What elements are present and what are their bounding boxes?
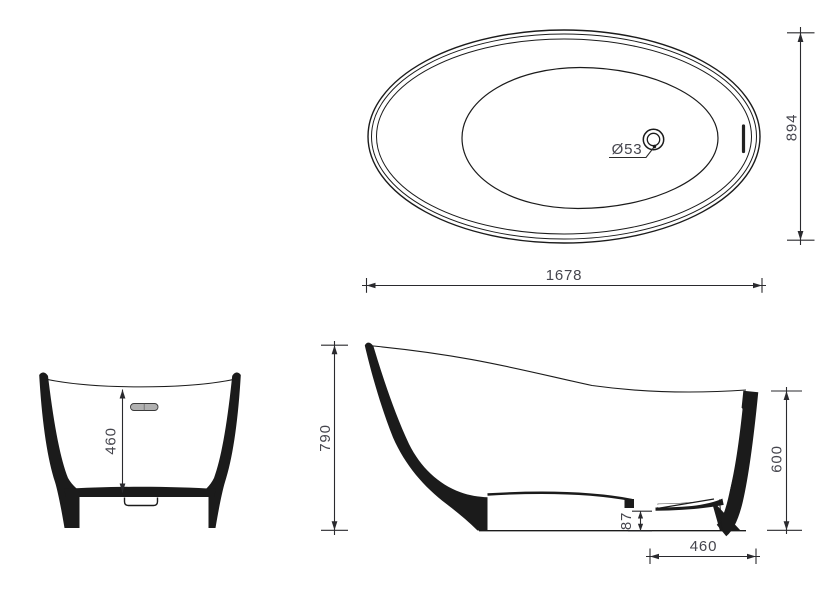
dim-arrow-down xyxy=(332,521,338,530)
dim-front-inner-depth-value: 460 xyxy=(103,427,120,454)
dim-side-drain-outlet-height-value: 87 xyxy=(618,512,635,530)
dim-arrow-left xyxy=(650,554,659,560)
dim-arrow-left xyxy=(367,283,376,289)
front-rim-line xyxy=(45,379,236,387)
dim-top-length: 1678 xyxy=(362,267,766,293)
side-view: 790 600 87 xyxy=(317,341,802,564)
drawing-svg: Ø53 894 1678 xyxy=(0,0,838,591)
dim-side-base-length: 460 xyxy=(646,538,760,564)
waste-pipe-channel xyxy=(659,410,741,506)
dim-side-overall-height: 790 xyxy=(317,341,348,535)
drain-leader-dot xyxy=(653,145,656,148)
front-view: 460 xyxy=(39,372,241,528)
dim-side-drain-outlet-height: 87 xyxy=(618,511,652,531)
dim-arrow-up xyxy=(332,345,338,354)
dim-arrow-right xyxy=(753,283,762,289)
dim-side-overall-height-value: 790 xyxy=(317,424,334,451)
bathtub-technical-drawing: Ø53 894 1678 xyxy=(0,0,838,591)
side-back-wall xyxy=(365,343,488,531)
dim-arrow-down xyxy=(638,524,643,531)
drain-outlet-slot xyxy=(634,494,658,508)
side-front-wall xyxy=(722,392,751,531)
drain-outlet-block xyxy=(625,499,635,508)
dim-side-base-length-value: 460 xyxy=(690,538,717,555)
tub-outer-rim-outline xyxy=(368,30,760,243)
dim-arrow-up xyxy=(120,390,126,399)
dim-arrow-down xyxy=(798,231,804,240)
dim-arrow-right xyxy=(747,554,756,560)
dim-arrow-up xyxy=(798,33,804,42)
side-rim-line xyxy=(368,346,746,392)
dim-arrow-down xyxy=(784,521,790,530)
dim-front-inner-depth: 460 xyxy=(103,390,126,493)
dim-top-width: 894 xyxy=(784,27,815,245)
top-view: Ø53 894 1678 xyxy=(362,27,815,293)
dim-arrow-up xyxy=(638,511,643,518)
tub-basin-outline xyxy=(462,68,718,209)
dim-arrow-up xyxy=(784,391,790,400)
drain-diameter-label: Ø53 xyxy=(612,141,643,158)
drain-inner-circle xyxy=(647,133,659,145)
dim-top-width-value: 894 xyxy=(784,114,801,141)
dim-side-rim-height-value: 600 xyxy=(769,445,786,472)
front-drain-recess xyxy=(125,498,158,506)
dim-top-length-value: 1678 xyxy=(546,267,583,284)
dim-side-rim-height: 600 xyxy=(767,387,802,534)
front-floor-band xyxy=(64,487,216,498)
side-floor-line-left xyxy=(488,493,633,500)
